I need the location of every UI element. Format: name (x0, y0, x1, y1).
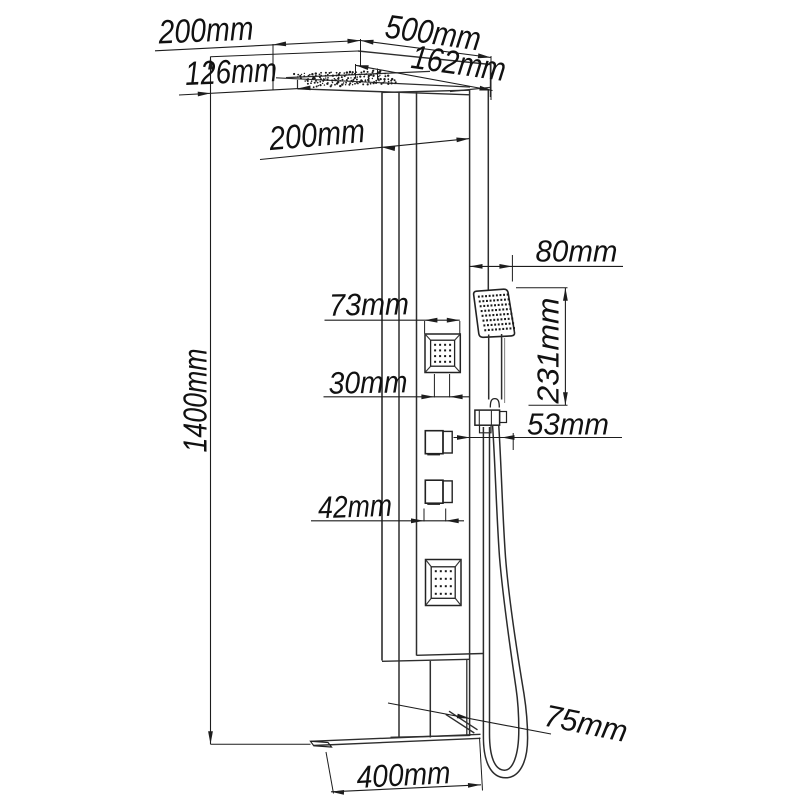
svg-text:80mm: 80mm (536, 234, 618, 269)
svg-text:1400mm: 1400mm (178, 349, 215, 453)
svg-text:73mm: 73mm (329, 286, 410, 322)
svg-text:126mm: 126mm (184, 52, 278, 93)
svg-text:200mm: 200mm (157, 10, 254, 51)
svg-text:42mm: 42mm (317, 488, 392, 526)
svg-text:30mm: 30mm (328, 364, 408, 400)
svg-text:53mm: 53mm (527, 407, 609, 442)
svg-text:400mm: 400mm (356, 754, 452, 795)
svg-text:231mm: 231mm (531, 298, 566, 405)
